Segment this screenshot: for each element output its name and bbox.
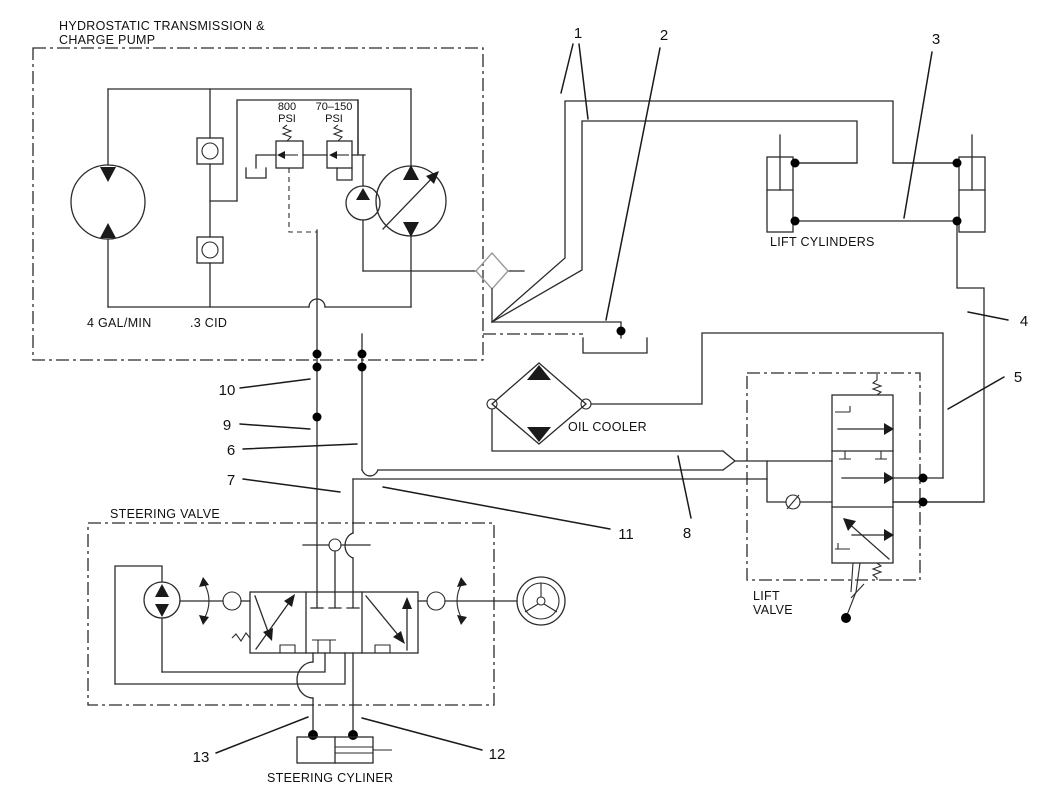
callout-9-number: 9	[223, 417, 231, 434]
callout-7-leader	[243, 479, 340, 492]
spool-pin-right	[427, 592, 445, 610]
callout-5: 5	[948, 369, 1022, 409]
transmission-title-line2: CHARGE PUMP	[59, 33, 155, 47]
reservoir-line	[492, 322, 621, 338]
steering-inlet-bridge	[303, 479, 370, 608]
steering-spool-valve	[223, 592, 445, 653]
check-valve-upper	[197, 138, 223, 164]
callout-9-leader	[240, 424, 310, 429]
hydraulic-schematic: HYDROSTATIC TRANSMISSION & CHARGE PUMP	[0, 0, 1048, 800]
callout-12-number: 12	[489, 746, 506, 763]
callout-6: 6	[227, 442, 357, 459]
check-valve-lower	[197, 237, 223, 263]
check-valve-column	[197, 89, 237, 307]
relief-flow-arrow-1	[277, 151, 285, 159]
callout-13: 13	[193, 717, 308, 766]
supply-line-outer	[492, 101, 957, 322]
lift-spool-spring-top	[873, 374, 881, 395]
callout-5-number: 5	[1014, 369, 1022, 386]
steering-cylinder-rod	[335, 747, 392, 753]
callout-9: 9	[223, 417, 310, 434]
callout-7: 7	[227, 472, 340, 492]
steering-valve-label: STEERING VALVE	[110, 507, 220, 521]
callout-8-leader	[678, 456, 691, 518]
crossover-arc	[362, 470, 378, 476]
callout-10-leader	[240, 379, 310, 388]
callout-11-number: 11	[618, 526, 634, 543]
chevron-connector	[723, 451, 735, 470]
drive-motor-symbol	[71, 89, 145, 307]
steering-cylinder-section: STEERING CYLINER	[267, 730, 393, 785]
oil-cooler-label: OIL COOLER	[568, 420, 647, 434]
lift-cylinders-section: LIFT CYLINDERS	[767, 135, 985, 249]
lift-valve-lever	[841, 563, 864, 623]
lift-cylinder-right	[953, 135, 986, 232]
lift-valve-spool	[832, 395, 893, 563]
callout-8-number: 8	[683, 525, 691, 542]
callout-2-number: 2	[660, 27, 668, 44]
lift-cylinder-left	[767, 135, 800, 232]
lift-valve-return-line	[591, 333, 943, 478]
callout-2-leader	[606, 48, 660, 320]
callout-8: 8	[678, 456, 691, 542]
callout-12-leader	[362, 718, 482, 750]
bottom-hop-arc	[297, 662, 313, 698]
callout-1-number: 1	[574, 25, 582, 42]
steering-valve-boundary	[88, 523, 494, 705]
callouts: 1 2 3 4 5 6 7 8	[193, 25, 1029, 766]
steering-cylinder-label: STEERING CYLINER	[267, 771, 393, 785]
cylinder-rod-line	[893, 221, 984, 502]
lift-valve-label-line1: LIFT	[753, 589, 780, 603]
hydrostatic-transmission-section: HYDROSTATIC TRANSMISSION & CHARGE PUMP	[33, 19, 583, 360]
callout-13-number: 13	[193, 749, 210, 766]
callout-6-leader	[243, 444, 357, 449]
relief-spring-1	[283, 125, 291, 141]
callout-2: 2	[606, 27, 668, 320]
callout-12: 12	[362, 718, 505, 763]
callout-3-number: 3	[932, 31, 940, 48]
callout-3: 3	[904, 31, 940, 218]
lift-cylinders-label: LIFT CYLINDERS	[770, 235, 875, 249]
lift-valve-section: LIFT VALVE	[747, 373, 984, 623]
relief-pilot-line	[289, 168, 317, 232]
drain-tank-symbol	[246, 168, 266, 178]
quick-disconnect-symbol	[476, 253, 508, 289]
cylinder-cross-lines	[795, 163, 957, 221]
relief-valve-manifold: 800 PSI 70–150 PSI	[237, 100, 365, 232]
callout-7-number: 7	[227, 472, 235, 489]
callout-4-number: 4	[1020, 313, 1028, 330]
relief-spring-2	[334, 125, 342, 141]
flow-rating-label: 4 GAL/MIN	[87, 316, 152, 330]
callout-10-number: 10	[219, 382, 236, 399]
callout-13-leader	[216, 717, 308, 753]
steering-bottom-plumbing	[115, 653, 353, 735]
steering-valve-section: STEERING VALVE	[88, 479, 565, 735]
transmission-title-line1: HYDROSTATIC TRANSMISSION &	[59, 19, 265, 33]
transmission-boundary	[33, 48, 483, 360]
callout-11: 11	[383, 487, 634, 543]
relief-main-pressure-label: 800	[278, 101, 296, 113]
lift-spool-spring-bottom	[873, 563, 881, 580]
variable-pump-symbol	[376, 89, 446, 307]
charge-pump-symbol	[346, 155, 380, 271]
callout-4-leader	[968, 312, 1008, 320]
lift-valve-right-ports	[893, 478, 984, 502]
callout-3-leader	[904, 52, 932, 218]
callout-10: 10	[219, 379, 310, 399]
lift-valve-label-line2: VALVE	[753, 603, 793, 617]
reservoir-symbol	[583, 338, 647, 353]
callout-6-number: 6	[227, 442, 235, 459]
callout-4: 4	[968, 312, 1028, 330]
relief-flow-arrow-2	[329, 151, 337, 159]
hydraulic-schematic-page: HYDROSTATIC TRANSMISSION & CHARGE PUMP	[0, 0, 1048, 800]
spool-pin-left	[223, 592, 241, 610]
lift-valve-boundary	[747, 373, 920, 580]
relief-charge-unit-label: PSI	[325, 113, 343, 125]
displacement-rating-label: .3 CID	[190, 316, 227, 330]
callout-5-leader	[948, 377, 1004, 409]
relief-charge-pressure-label: 70–150	[316, 101, 353, 113]
spool-spring	[232, 633, 250, 641]
relief-main-unit-label: PSI	[278, 113, 296, 125]
lift-check-line	[767, 461, 832, 502]
